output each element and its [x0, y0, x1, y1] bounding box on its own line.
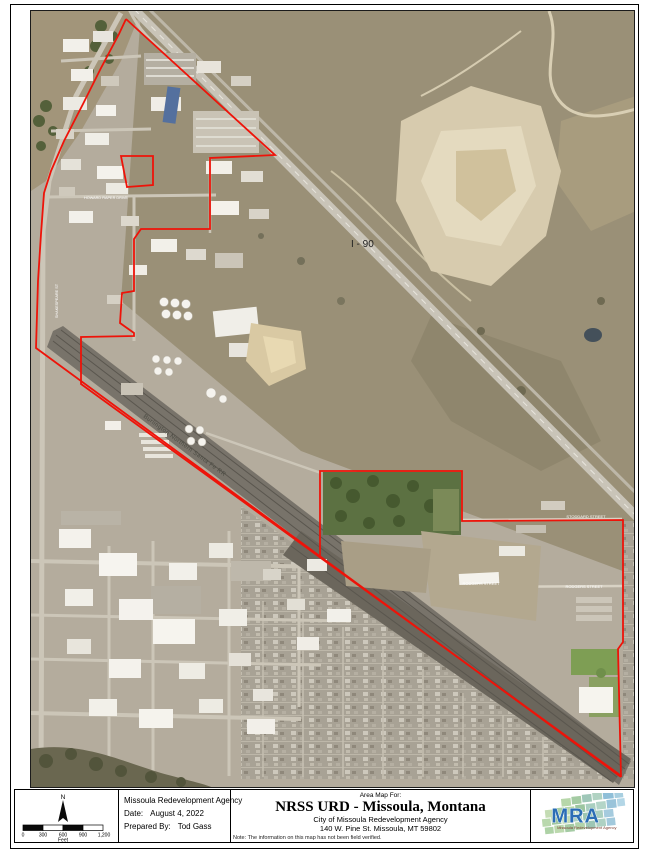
aerial-map-image: I - 90 Burlington Northern Santa Fe RR S…: [31, 11, 634, 787]
area-map-for-label: Area Map For:: [231, 792, 530, 799]
disclaimer-note: Note: The information on this map has no…: [233, 835, 381, 841]
logo-cell: MRA Missoula Redevelopment Agency: [531, 790, 633, 842]
scale-tick-300: 300: [39, 833, 48, 839]
pond: [584, 328, 602, 342]
stoddard-street-label: STODDARD STREET: [566, 514, 606, 519]
prepared-by-value: Tod Gass: [178, 822, 212, 831]
shakespeare-street-label: SHAKESPEARE ST: [55, 283, 59, 318]
howard-raper-label: HOWARD RAPER DRIVE: [84, 196, 128, 200]
date-line: Date:August 4, 2022: [124, 807, 230, 820]
agency-cell: Missoula Redevelopment Agency Date:Augus…: [119, 790, 231, 842]
mra-logo-tagline: Missoula Redevelopment Agency: [557, 825, 616, 830]
scale-tick-1200: 1,200: [98, 833, 111, 839]
prepared-line: Prepared By:Tod Gass: [124, 820, 230, 833]
rodgers-street-label-east: RODGERS STREET: [565, 584, 603, 589]
map-title-cell: Area Map For: NRSS URD - Missoula, Monta…: [231, 790, 531, 842]
prepared-by-label: Prepared By:: [124, 822, 171, 831]
rodgers-street-label-west: RODGERS STREET: [462, 581, 500, 586]
north-arrow-icon: [58, 800, 68, 822]
scale-tick-900: 900: [79, 833, 88, 839]
north-arrow-and-scale: N 0 300 600 900 1,200 Feet: [15, 790, 117, 842]
scale-unit-label: Feet: [58, 838, 69, 843]
agency-name: Missoula Redevelopment Agency: [124, 794, 230, 807]
map-title-text: NRSS URD - Missoula, Montana: [231, 799, 530, 815]
scale-cell: N 0 300 600 900 1,200 Feet: [15, 790, 119, 842]
map-frame: I - 90 Burlington Northern Santa Fe RR S…: [30, 10, 635, 788]
i90-label: I - 90: [351, 239, 374, 250]
mra-logo: MRA Missoula Redevelopment Agency: [534, 793, 630, 839]
scale-tick-0: 0: [22, 833, 25, 839]
date-label: Date:: [124, 809, 143, 818]
title-block: N 0 300 600 900 1,200 Feet: [14, 789, 634, 843]
scale-bar: [23, 825, 103, 831]
org-address: 140 W. Pine St. Missoula, MT 59802: [231, 824, 530, 833]
map-document-page: I - 90 Burlington Northern Santa Fe RR S…: [0, 0, 648, 854]
date-value: August 4, 2022: [150, 809, 204, 818]
north-label: N: [61, 794, 66, 801]
org-name: City of Missoula Redevelopment Agency: [231, 815, 530, 824]
